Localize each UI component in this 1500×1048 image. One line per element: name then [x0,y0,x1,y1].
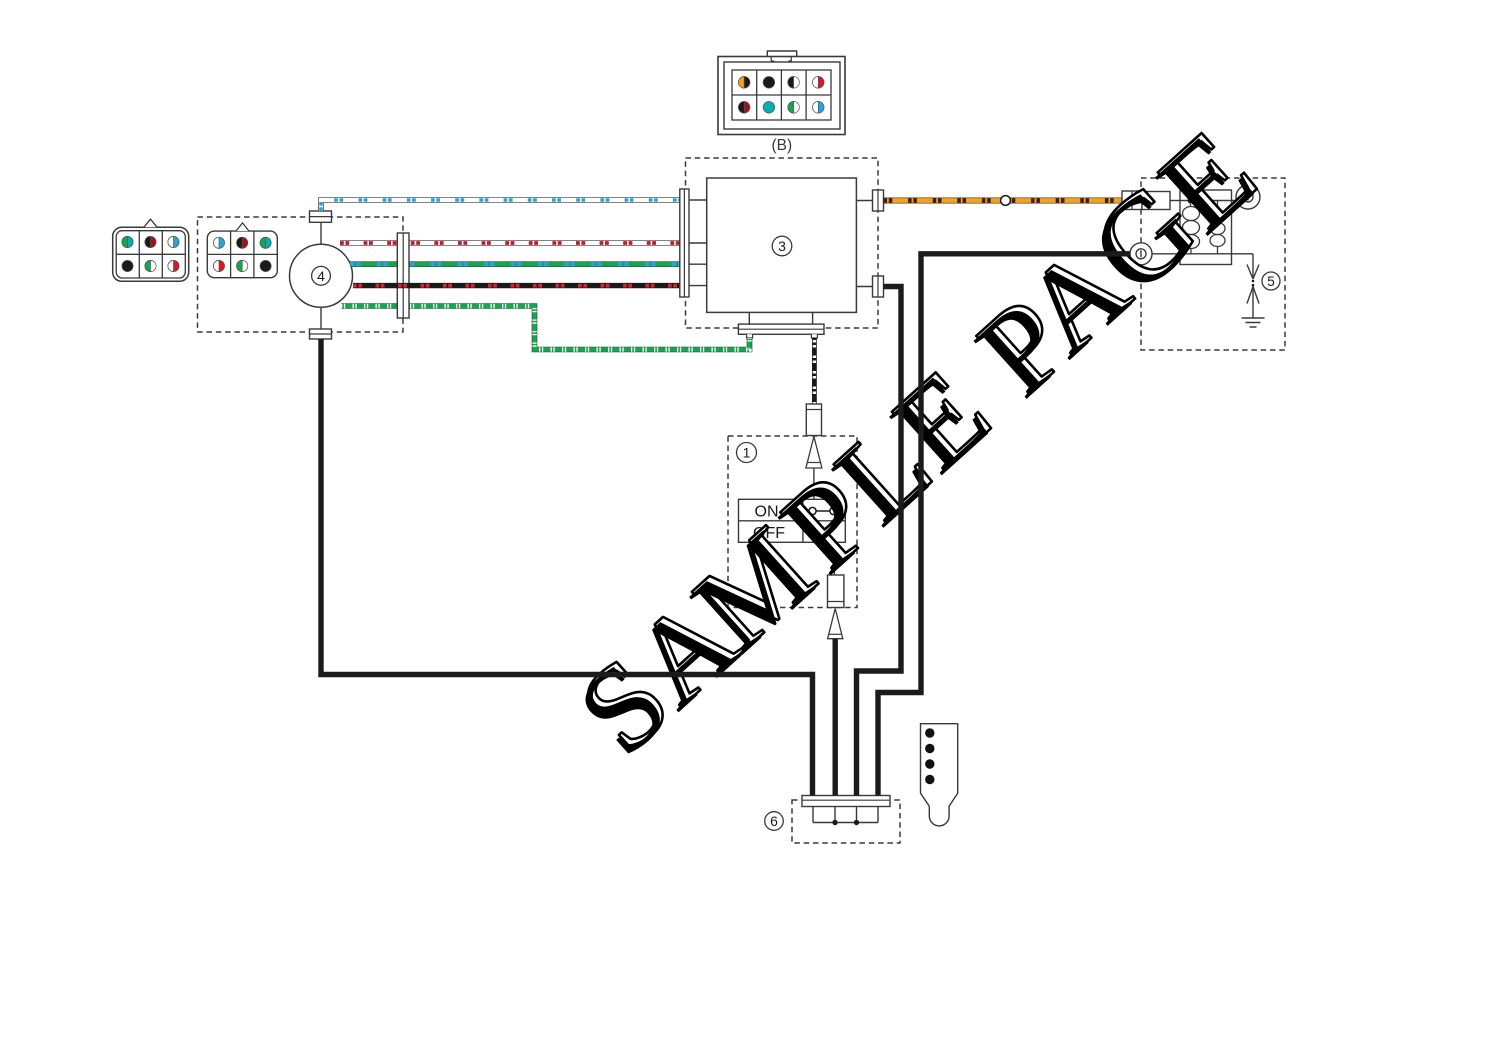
svg-text:5: 5 [1267,274,1275,289]
svg-text:4: 4 [317,268,325,284]
svg-text:(B): (B) [771,137,792,154]
svg-text:3: 3 [778,238,786,254]
svg-text:1: 1 [743,445,751,461]
svg-text:6: 6 [770,813,778,829]
